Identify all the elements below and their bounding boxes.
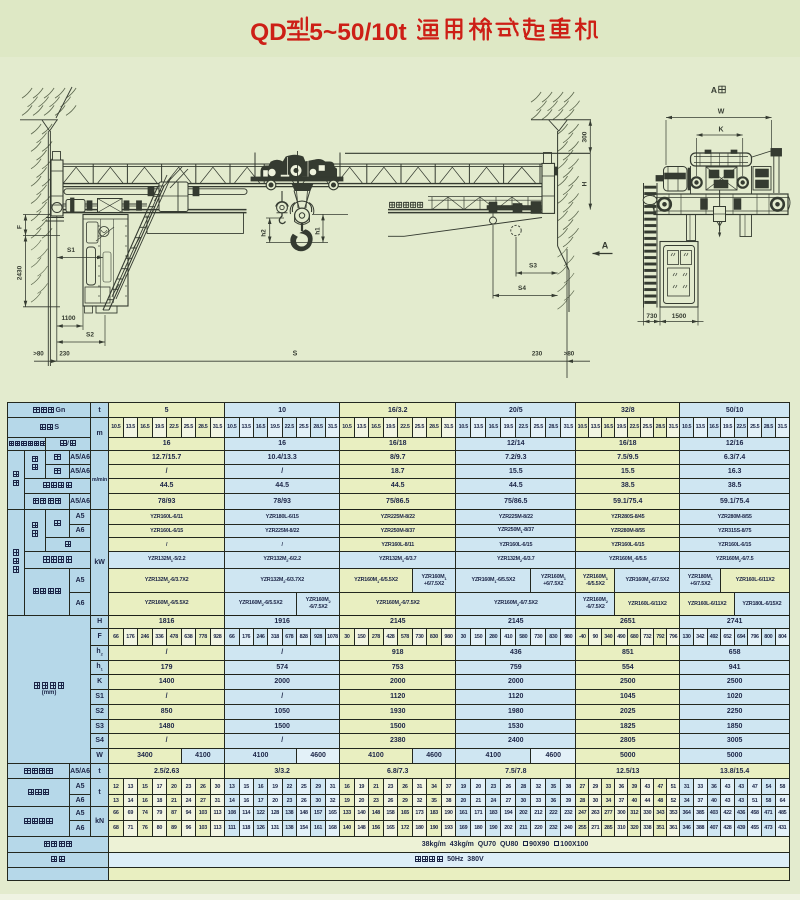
svg-text:A: A — [711, 85, 717, 95]
svg-text:H: H — [582, 181, 589, 186]
svg-text:1100: 1100 — [61, 315, 75, 322]
svg-text:S: S — [293, 351, 298, 358]
svg-text:h2: h2 — [261, 229, 268, 237]
svg-text:A: A — [602, 241, 609, 251]
svg-text:S2: S2 — [86, 332, 94, 339]
svg-text:F: F — [17, 225, 24, 229]
svg-text:S1: S1 — [67, 247, 75, 254]
svg-text:230: 230 — [532, 351, 543, 358]
svg-text:S3: S3 — [529, 263, 537, 270]
svg-text:300: 300 — [582, 131, 589, 142]
svg-text:730: 730 — [646, 313, 657, 320]
svg-text:h1: h1 — [315, 227, 322, 235]
svg-text:>80: >80 — [33, 351, 44, 358]
svg-text:5~50/10t: 5~50/10t — [309, 19, 406, 46]
svg-text:QD: QD — [250, 19, 287, 46]
svg-text:S4: S4 — [518, 285, 526, 292]
svg-text:1500: 1500 — [672, 313, 687, 320]
svg-text:2430: 2430 — [17, 265, 24, 280]
svg-text:>80: >80 — [564, 351, 575, 358]
svg-text:K: K — [718, 127, 723, 134]
svg-text:W: W — [718, 109, 725, 116]
svg-text:230: 230 — [59, 351, 70, 358]
